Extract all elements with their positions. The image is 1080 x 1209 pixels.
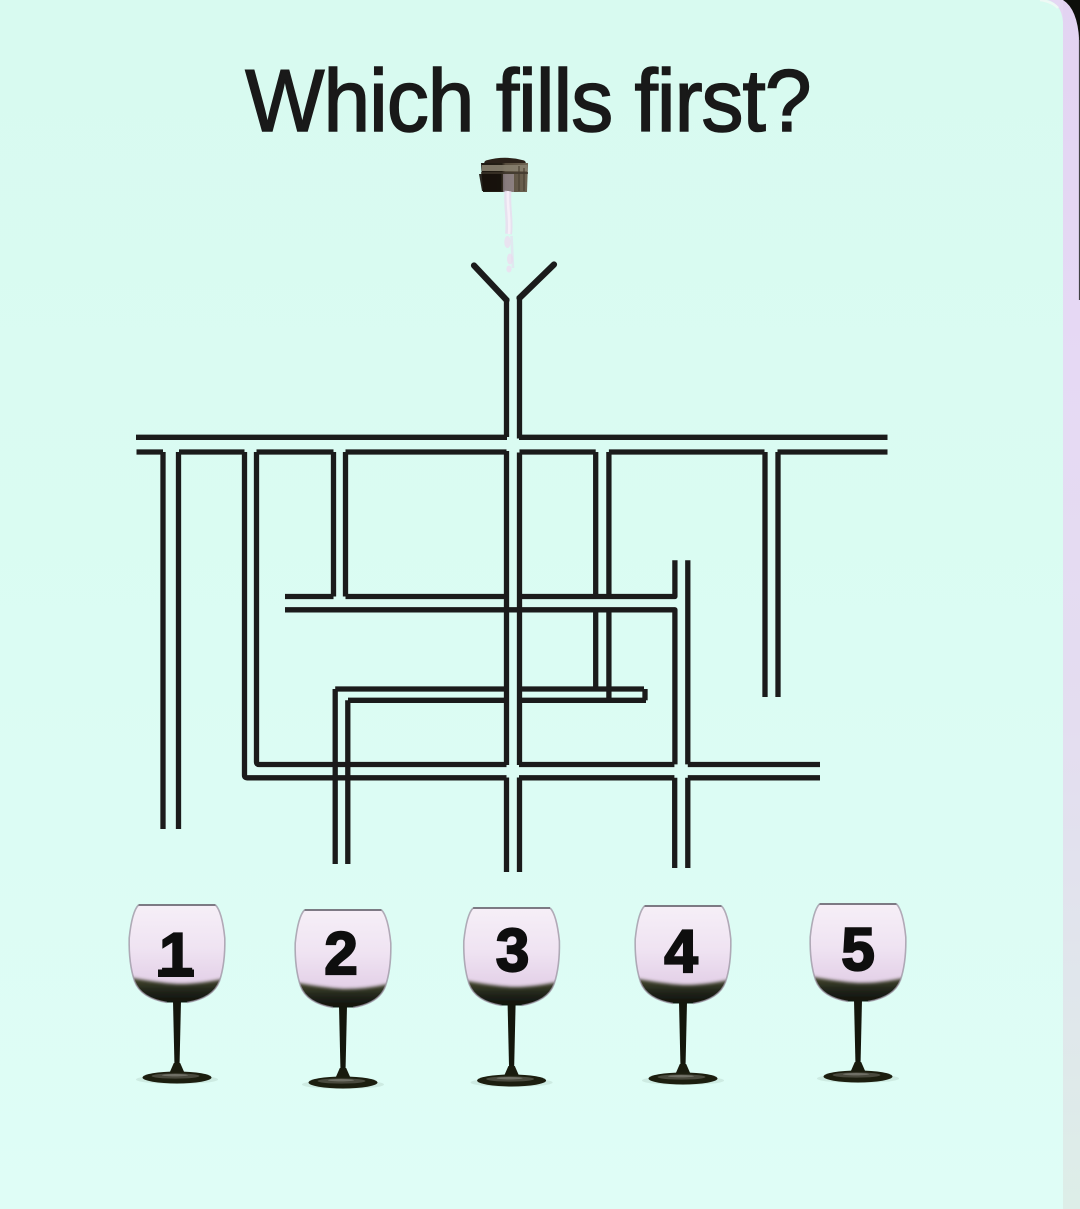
svg-text:3: 3 (496, 917, 529, 984)
svg-text:2: 2 (324, 920, 357, 987)
svg-text:4: 4 (664, 918, 698, 985)
svg-text:1: 1 (159, 921, 192, 988)
svg-text:5: 5 (841, 916, 874, 983)
